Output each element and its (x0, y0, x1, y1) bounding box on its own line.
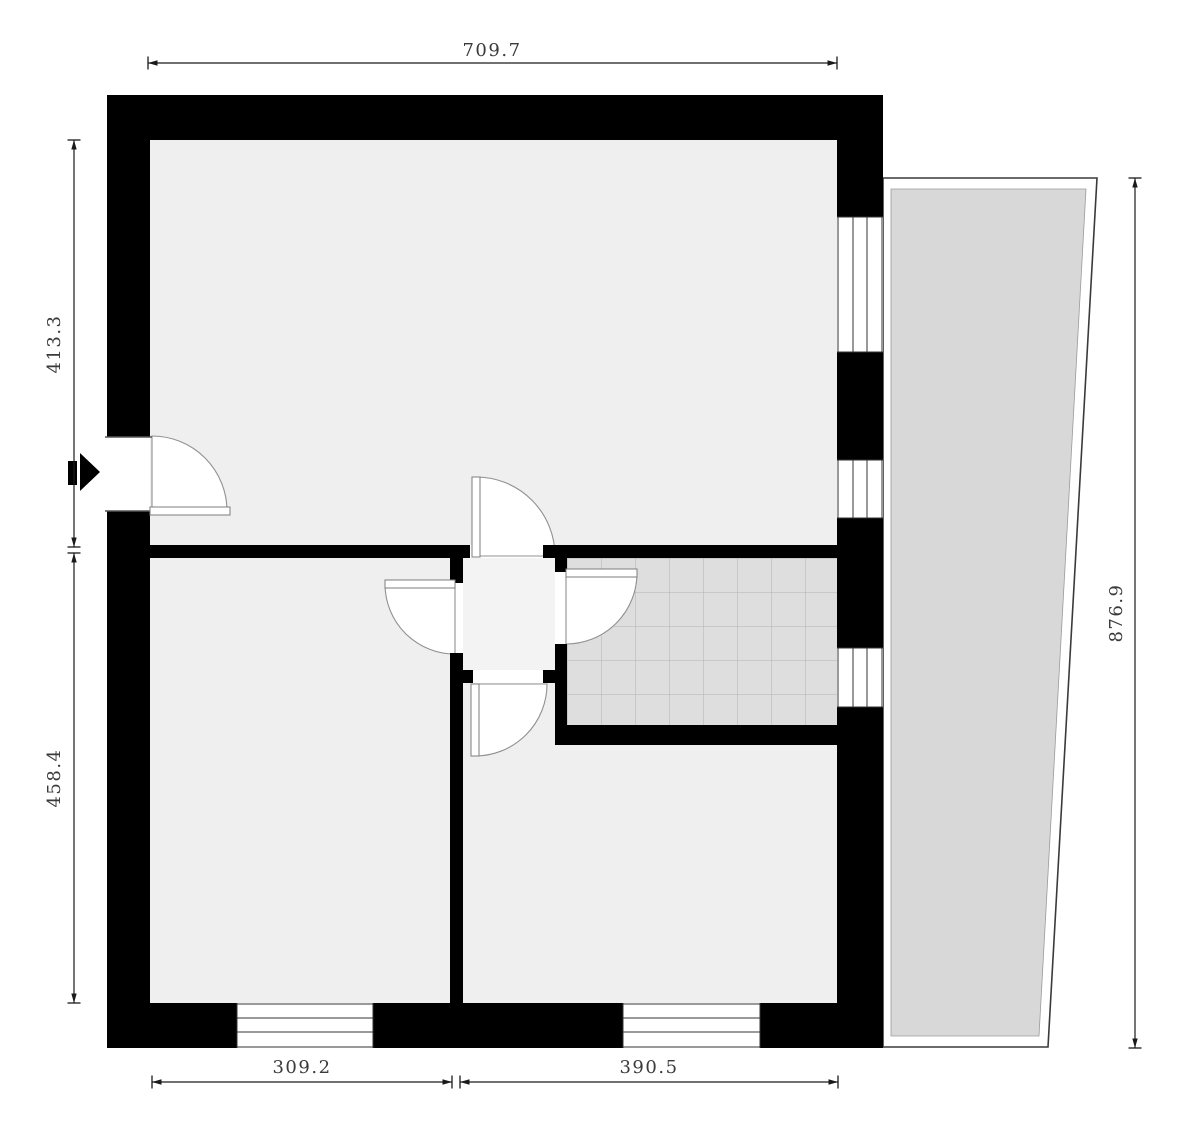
floor-plan-canvas: 709.7 413.3 458.4 876.9 309.2 390.5 (0, 0, 1200, 1123)
entry-opening (105, 437, 152, 511)
wall-exterior-right-1 (837, 140, 883, 217)
dimension-label-top: 709.7 (462, 40, 521, 61)
floor-plan-drawing: 709.7 413.3 458.4 876.9 309.2 390.5 (0, 0, 1200, 1123)
wall-interior-vertical-upper (450, 558, 463, 583)
doorway-right (555, 572, 567, 644)
wall-interior-horizontal-left (145, 545, 470, 558)
wall-tiledroom-bottom (555, 725, 837, 745)
window-bottom-2 (623, 1003, 760, 1048)
wall-exterior-top (107, 95, 883, 140)
window-right-3 (837, 648, 883, 707)
dimension-left-upper-height: 413.3 (44, 140, 74, 547)
dimension-bottom-right-width: 390.5 (460, 1057, 838, 1082)
window-right-2 (837, 460, 883, 518)
dimension-label-left-upper: 413.3 (44, 314, 65, 373)
dimension-label-left-lower: 458.4 (44, 748, 65, 807)
wall-exterior-right-4 (837, 707, 883, 1048)
wall-exterior-left-upper (107, 95, 150, 437)
wall-tiledroom-left-lower (555, 644, 567, 725)
wall-exterior-right-2 (837, 352, 883, 460)
dimension-label-right: 876.9 (1106, 583, 1127, 642)
dimension-label-bottom-right: 390.5 (619, 1057, 678, 1078)
dimension-left-lower-height: 458.4 (44, 553, 74, 1003)
window-right-1 (837, 217, 883, 352)
doorway-bottom (473, 670, 543, 683)
wall-exterior-bottom-2 (373, 1003, 623, 1048)
window-bottom-1 (237, 1003, 373, 1048)
hall-bottom-door-panel (471, 684, 479, 756)
wall-exterior-right-3 (837, 518, 883, 648)
dimension-right-height: 876.9 (1106, 178, 1135, 1048)
wall-tiledroom-left-upper (555, 558, 567, 572)
wall-exterior-left-lower (107, 511, 150, 1048)
entry-door-panel (150, 507, 230, 515)
wall-interior-vertical-lower (450, 653, 463, 1003)
wall-interior-horizontal-right (543, 545, 837, 558)
balcony (883, 178, 1097, 1047)
entry-arrow-icon (68, 453, 100, 491)
wall-exterior-bottom-1 (107, 1003, 237, 1048)
hall-right-door-panel (566, 569, 637, 577)
dimension-bottom-left-width: 309.2 (152, 1057, 452, 1082)
balcony-floor (891, 189, 1086, 1036)
hallway-floor (463, 558, 555, 670)
hall-left-door-panel (385, 580, 455, 588)
wall-hall-bottom-left (450, 670, 473, 683)
dimension-label-bottom-left: 309.2 (272, 1057, 331, 1078)
dimension-top-width: 709.7 (148, 40, 837, 63)
hall-top-door-panel (472, 477, 480, 557)
